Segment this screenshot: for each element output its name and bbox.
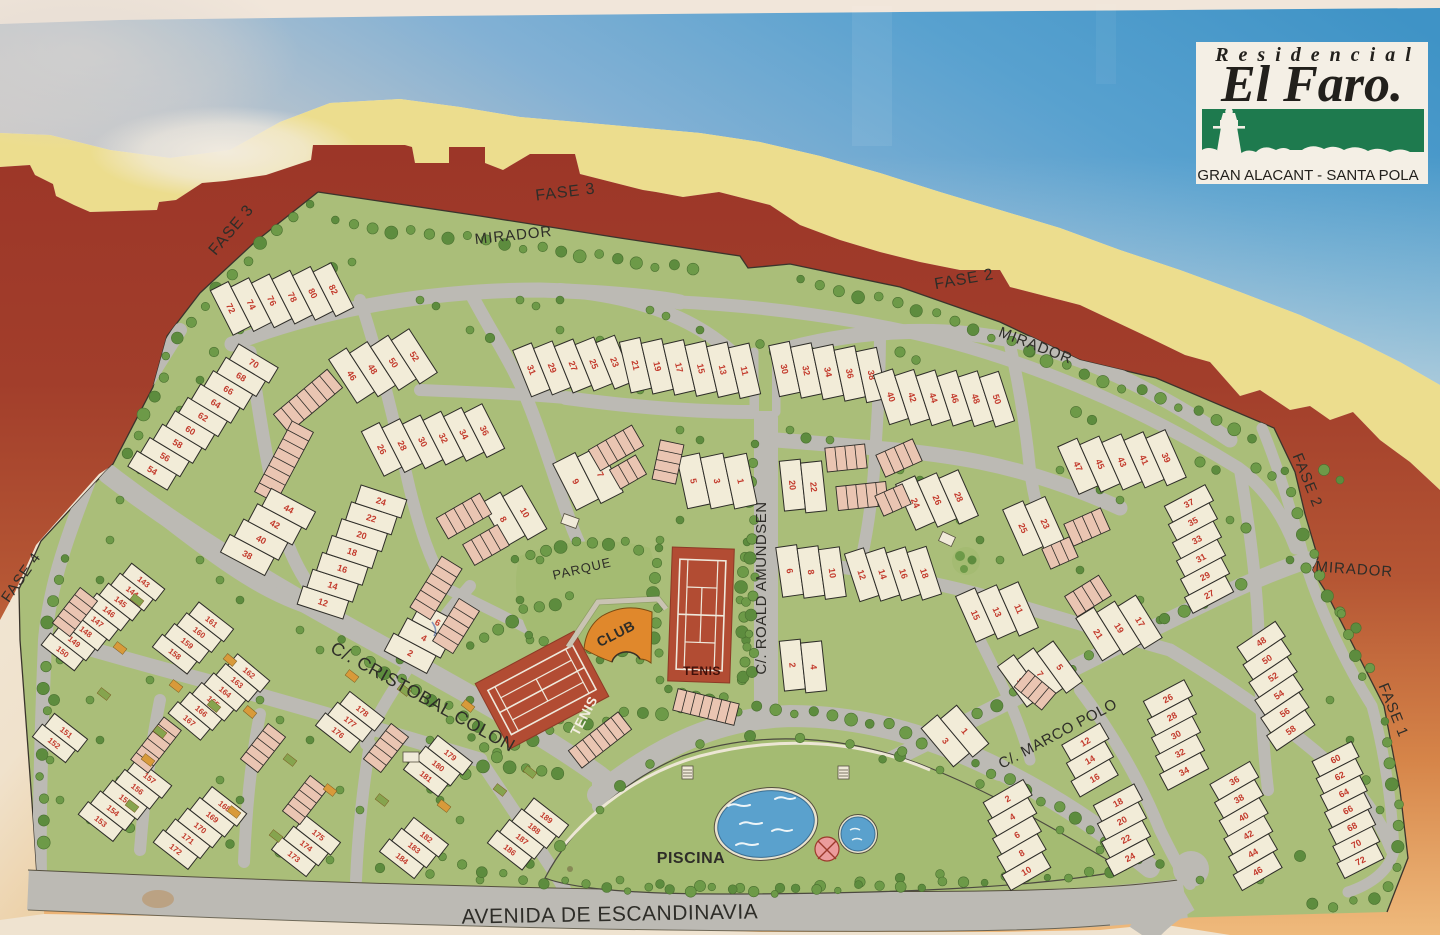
svg-text:El Faro.: El Faro. xyxy=(1220,56,1403,113)
svg-text:10: 10 xyxy=(827,567,838,578)
svg-text:C/. ROALD AMUNDSEN: C/. ROALD AMUNDSEN xyxy=(753,501,770,674)
svg-text:PISCINA: PISCINA xyxy=(657,850,725,867)
svg-text:22: 22 xyxy=(808,481,819,492)
svg-text:30: 30 xyxy=(778,363,790,375)
svg-text:2: 2 xyxy=(787,662,797,668)
svg-text:34: 34 xyxy=(822,366,834,378)
svg-text:36: 36 xyxy=(844,368,856,380)
svg-text:GRAN ALACANT - SANTA POLA: GRAN ALACANT - SANTA POLA xyxy=(1197,167,1418,184)
svg-text:32: 32 xyxy=(800,365,812,377)
svg-text:TENIS: TENIS xyxy=(683,664,721,678)
svg-text:4: 4 xyxy=(808,664,818,670)
svg-text:20: 20 xyxy=(787,480,798,491)
